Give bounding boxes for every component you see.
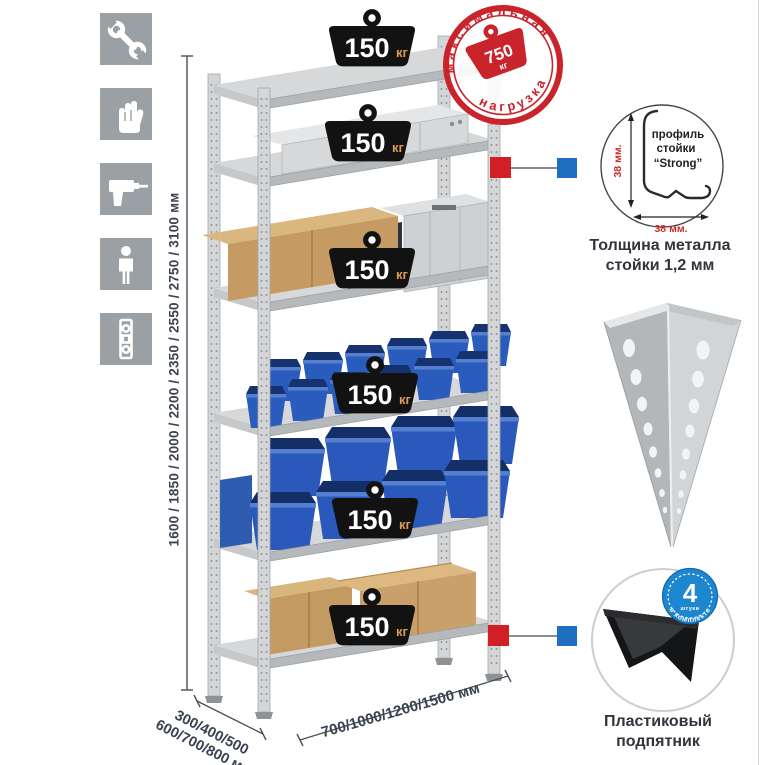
foot-caption-line1: Пластиковый [558,712,758,732]
svg-text:150: 150 [344,255,389,285]
shelf-weight-badge-3: 150 кг [320,230,424,296]
shelf-weight-badge-6: 150 кг [320,587,424,653]
level-icon [100,313,152,365]
svg-text:кг: кг [399,517,412,532]
wrench-icon [100,13,152,65]
shelf-weight-badge-1: 150 кг [320,8,424,74]
profile-label-3: “Strong” [654,158,703,170]
badge-sub-label: штуки [680,606,699,612]
infographic-canvas: 38 мм. 38 мм. профиль стойки “Strong” [0,0,765,765]
profile-dim-vertical: 38 мм. [612,144,624,177]
count-badge: 4 штуки в комплекте [663,569,718,625]
shelf-weight-badge-2: 150 кг [316,103,420,169]
height-dimension-label: 1600 / 1850 / 2000 / 2200 / 2350 / 2550 … [167,120,182,620]
plastic-foot-picture: 4 штуки в комплекте [592,569,734,712]
gloves-icon [100,88,152,140]
profile-dim-horizontal: 38 мм. [654,223,687,235]
profile-caption-line1: Толщина металла [560,236,760,256]
height-dimension-line [181,56,193,690]
person-icon [100,238,152,290]
svg-text:150: 150 [347,380,392,410]
angle-post-picture [604,303,741,547]
svg-text:кг: кг [399,392,412,407]
foot-caption-line2: подпятник [558,732,758,752]
badge-count: 4 [683,578,698,608]
svg-text:кг: кг [396,267,409,282]
profile-caption-line2: стойки 1,2 мм [560,256,760,276]
profile-label-2: стойки [657,143,696,155]
svg-text:кг: кг [396,45,409,60]
svg-text:кг: кг [392,140,405,155]
foot-front-left [255,712,273,719]
foot-back-left [205,696,223,703]
svg-text:150: 150 [344,612,389,642]
shelf-weight-badge-4: 150 кг [323,355,427,421]
foot-caption: Пластиковый подпятник [558,712,758,752]
profile-callout-marker [490,157,577,178]
profile-caption: Толщина металла стойки 1,2 мм [560,236,760,276]
profile-detail-circle: 38 мм. 38 мм. профиль стойки “Strong” [601,105,723,235]
svg-text:150: 150 [347,505,392,535]
svg-text:кг: кг [396,624,409,639]
svg-text:150: 150 [340,128,385,158]
shelf-weight-badge-5: 150 кг [323,480,427,546]
svg-text:150: 150 [344,33,389,63]
drill-icon [100,163,152,215]
foot-back-right [435,658,453,665]
foot-callout-marker [488,625,577,646]
profile-label-1: профиль [652,129,705,141]
